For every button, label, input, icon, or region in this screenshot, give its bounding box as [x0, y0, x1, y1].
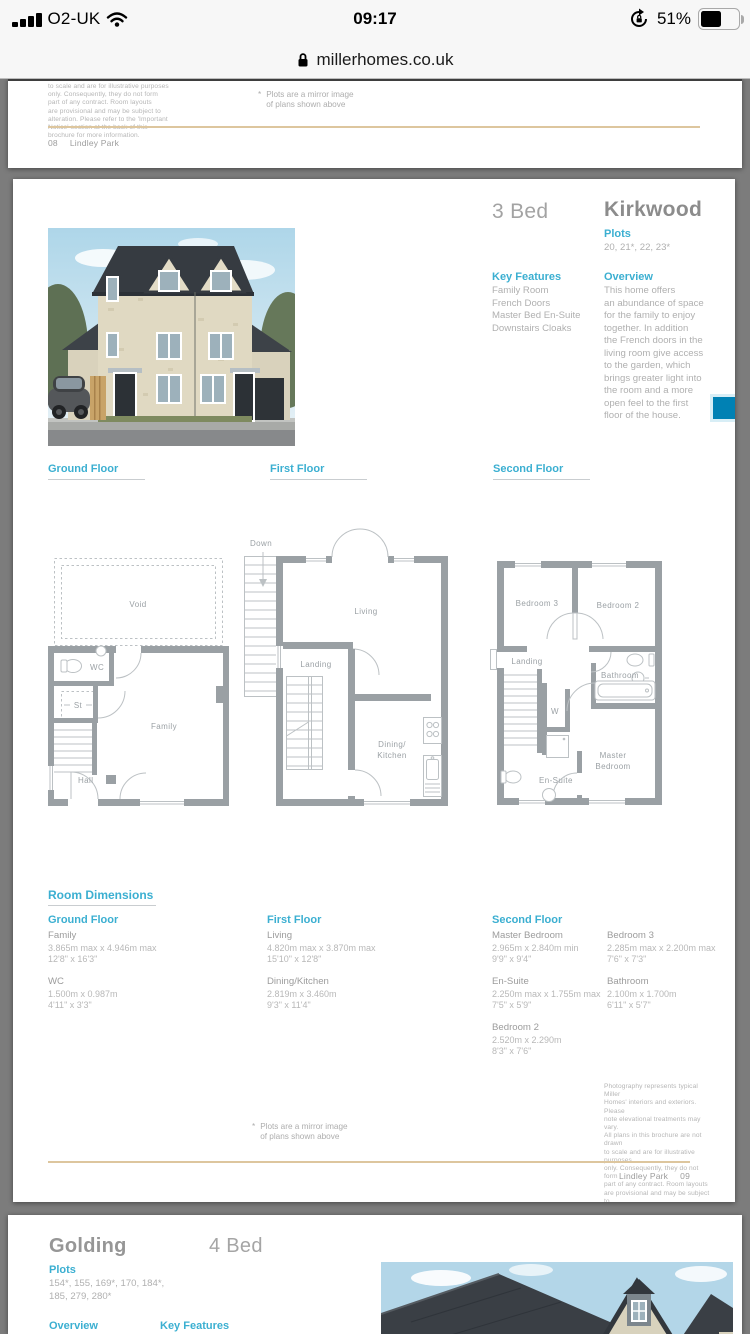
dim-entry: Master Bedroom 2.965m x 2.840m min 9'9" … [492, 930, 604, 965]
section-ground-floor: Ground Floor [48, 463, 118, 475]
plots-label: Plots [49, 1264, 76, 1276]
plan-label-kitchen: Kitchen [377, 751, 406, 760]
dims-header: First Floor [267, 914, 477, 930]
plots-label: Plots [604, 228, 631, 240]
page-footer: Lindley Park 09 [48, 1171, 690, 1181]
bed-count: 3 Bed [492, 200, 548, 224]
dim-entry: Bedroom 3 2.285m max x 2.200m max 7'6" x… [607, 930, 735, 965]
status-right-group: 51% [628, 8, 740, 30]
key-feature-item: French Doors [492, 298, 581, 311]
house-render-image [48, 228, 295, 446]
section-second-floor: Second Floor [493, 463, 563, 475]
dim-room: Master Bedroom [492, 930, 604, 941]
plan-label-master2: Bedroom [595, 762, 630, 771]
plan-label-master1: Master [600, 751, 627, 760]
tan-divider [48, 1161, 690, 1163]
first-floor-plan: Down [236, 518, 455, 812]
plots-values: 154*, 155, 169*, 170, 184*, 185, 279, 28… [49, 1278, 164, 1303]
url-bar[interactable]: millerhomes.co.uk [0, 42, 750, 79]
brochure-page-prev: to scale and are for illustrative purpos… [8, 78, 742, 168]
tan-divider [48, 126, 700, 128]
padlock-icon [297, 52, 309, 68]
page-footer: 08 Lindley Park [48, 138, 119, 148]
dims-column-second-b: Bedroom 3 2.285m max x 2.200m max 7'6" x… [607, 914, 735, 1022]
dim-entry: Family 3.865m max x 4.946m max 12'8" x 1… [48, 930, 258, 965]
dim-entry: WC 1.500m x 0.987m 4'11" x 3'3" [48, 976, 258, 1011]
dim-metric: 2.285m max x 2.200m max [607, 943, 735, 954]
plan-label-wardrobe: W [551, 707, 559, 716]
dim-imperial: 9'9" x 9'4" [492, 954, 604, 965]
plan-label-hall: Hall [78, 776, 93, 785]
home-name: Kirkwood [604, 198, 702, 222]
battery-percent-label: 51% [657, 9, 691, 29]
overview-text: This home offers an abundance of space f… [604, 285, 719, 423]
plan-label-landing: Landing [300, 660, 331, 669]
dim-room: Living [267, 930, 477, 941]
dim-imperial: 9'3" x 11'4" [267, 1000, 477, 1011]
plan-label-bathroom: Bathroom [601, 671, 639, 680]
dim-room: En-Suite [492, 976, 604, 987]
brochure-page-kirkwood: 3 Bed Kirkwood Plots 20, 21*, 22, 23* Ke… [13, 179, 735, 1202]
plan-label-down: Down [250, 539, 272, 548]
dim-entry: Bathroom 2.100m x 1.700m 6'11" x 5'7" [607, 976, 735, 1011]
mirror-note: * Plots are a mirror image of plans show… [252, 1122, 348, 1142]
dim-room: Bathroom [607, 976, 735, 987]
status-bar: O2-UK 09:17 51% [0, 0, 750, 42]
plan-label-bedroom2: Bedroom 2 [597, 601, 640, 610]
plan-label-ensuite: En-Suite [539, 776, 573, 785]
dim-metric: 2.250m max x 1.755m max [492, 989, 604, 1000]
key-features-list: Family Room French Doors Master Bed En-S… [492, 285, 581, 335]
development-name: Lindley Park [70, 138, 119, 148]
dims-header: Ground Floor [48, 914, 258, 930]
dim-imperial: 6'11" x 5'7" [607, 1000, 735, 1011]
plan-label-living: Living [354, 607, 377, 616]
plan-label-bedroom3: Bedroom 3 [516, 599, 559, 608]
page-number: 09 [680, 1171, 690, 1181]
section-underline [270, 479, 367, 480]
dims-column-first: First Floor Living 4.820m max x 3.870m m… [267, 914, 477, 1022]
house-photo [381, 1262, 733, 1334]
disclaimer-text: Photography represents typical Miller Ho… [604, 1083, 712, 1202]
dim-entry: Dining/Kitchen 2.819m x 3.460m 9'3" x 11… [267, 976, 477, 1011]
dim-entry: Living 4.820m max x 3.870m max 15'10" x … [267, 930, 477, 965]
mirror-asterisk: * [252, 1122, 255, 1142]
section-underline [48, 479, 145, 480]
home-name: Golding [49, 1235, 127, 1258]
dim-imperial: 4'11" x 3'3" [48, 1000, 258, 1011]
dim-room: Bedroom 2 [492, 1022, 604, 1033]
dim-metric: 2.520m x 2.290m [492, 1035, 604, 1046]
brochure-page-golding: Golding 4 Bed Plots 154*, 155, 169*, 170… [8, 1215, 742, 1334]
dims-column-second: Second Floor Master Bedroom 2.965m x 2.8… [492, 914, 604, 1068]
key-feature-item: Master Bed En-Suite [492, 310, 581, 323]
mirror-note: * Plots are a mirror image of plans show… [258, 90, 354, 110]
key-features-label: Key Features [160, 1320, 229, 1332]
blue-tab-marker [710, 394, 735, 422]
browser-viewport[interactable]: to scale and are for illustrative purpos… [0, 78, 750, 1334]
dim-room: Family [48, 930, 258, 941]
dim-imperial: 15'10" x 12'8" [267, 954, 477, 965]
plots-values: 20, 21*, 22, 23* [604, 242, 670, 255]
section-first-floor: First Floor [270, 463, 324, 475]
dim-imperial: 8'3" x 7'6" [492, 1046, 604, 1057]
disclaimer-text: to scale and are for illustrative purpos… [48, 83, 183, 140]
dim-imperial: 7'6" x 7'3" [607, 954, 735, 965]
dim-room: Bedroom 3 [607, 930, 735, 941]
dim-metric: 3.865m max x 4.946m max [48, 943, 258, 954]
plan-label-st: St [74, 701, 83, 710]
dim-metric: 2.965m x 2.840m min [492, 943, 604, 954]
dim-entry: En-Suite 2.250m max x 1.755m max 7'5" x … [492, 976, 604, 1011]
dim-metric: 2.100m x 1.700m [607, 989, 735, 1000]
overview-label: Overview [604, 271, 653, 283]
rotation-lock-icon [628, 8, 650, 30]
dim-imperial: 12'8" x 16'3" [48, 954, 258, 965]
key-features-label: Key Features [492, 271, 561, 283]
iphone-screen: O2-UK 09:17 51% millerh [0, 0, 750, 1334]
section-underline [493, 479, 590, 480]
key-feature-item: Downstairs Cloaks [492, 323, 581, 336]
dim-imperial: 7'5" x 5'9" [492, 1000, 604, 1011]
battery-icon [698, 8, 740, 30]
dims-column-ground: Ground Floor Family 3.865m max x 4.946m … [48, 914, 258, 1022]
dim-metric: 1.500m x 0.987m [48, 989, 258, 1000]
bed-count: 4 Bed [209, 1235, 263, 1258]
dims-header: Second Floor [492, 914, 604, 930]
key-feature-item: Family Room [492, 285, 581, 298]
dim-metric: 4.820m max x 3.870m max [267, 943, 477, 954]
room-dimensions-underline [48, 905, 156, 906]
mirror-asterisk: * [258, 90, 261, 110]
mirror-note-text: Plots are a mirror image of plans shown … [266, 90, 353, 110]
plan-label-landing2: Landing [511, 657, 542, 666]
plan-label-family: Family [151, 722, 177, 731]
second-floor-plan: Bedroom 3 Bedroom 2 Landing [489, 551, 670, 812]
dim-entry: Bedroom 2 2.520m x 2.290m 8'3" x 7'6" [492, 1022, 604, 1057]
plan-label-void: Void [129, 600, 146, 609]
ground-floor-plan: Void WC St [48, 550, 229, 812]
development-name: Lindley Park [619, 1171, 668, 1181]
page-number: 08 [48, 138, 58, 148]
room-dimensions-title: Room Dimensions [48, 888, 153, 902]
plan-label-wc: WC [90, 663, 104, 672]
overview-label: Overview [49, 1320, 98, 1332]
dim-room: WC [48, 976, 258, 987]
plan-label-dining: Dining/ [378, 740, 406, 749]
mirror-note-text: Plots are a mirror image of plans shown … [260, 1122, 347, 1142]
dim-metric: 2.819m x 3.460m [267, 989, 477, 1000]
dim-room: Dining/Kitchen [267, 976, 477, 987]
url-domain[interactable]: millerhomes.co.uk [317, 50, 454, 70]
